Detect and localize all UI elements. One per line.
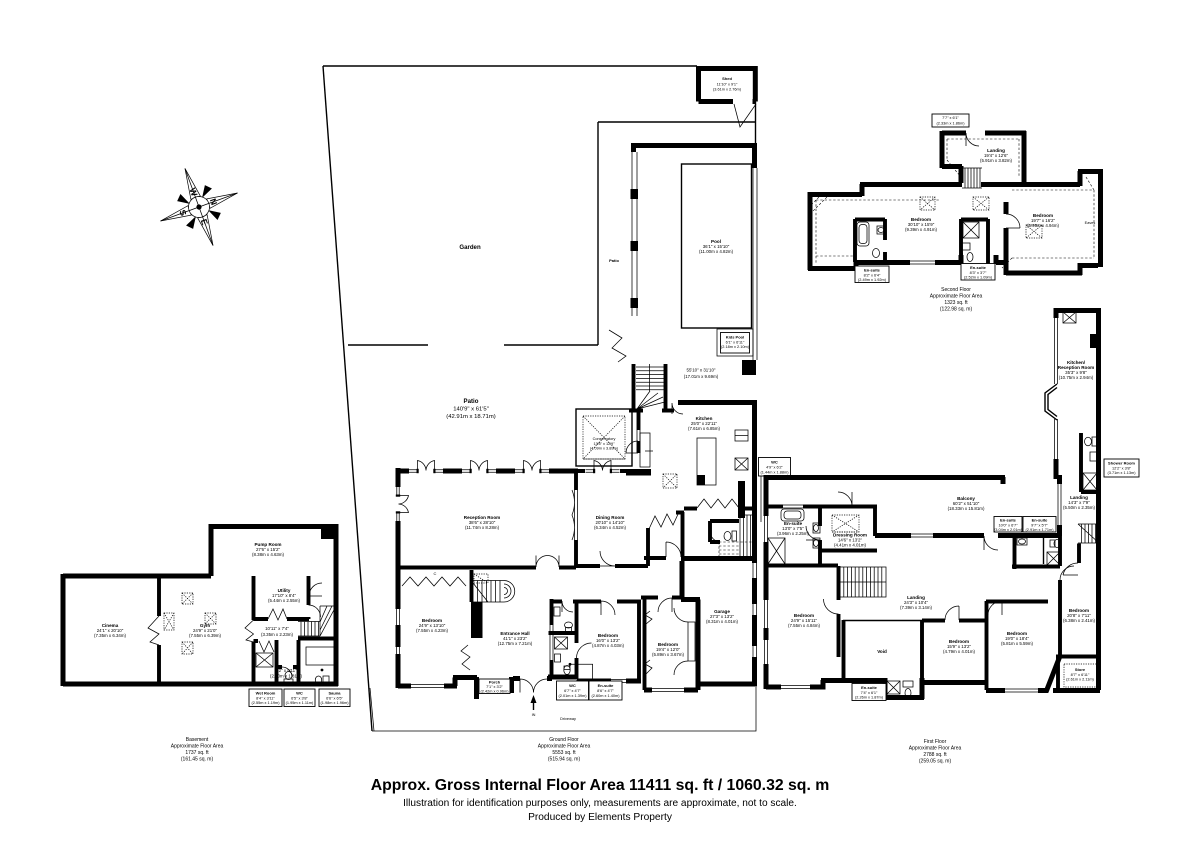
svg-text:(11.00m x 4.82m): (11.00m x 4.82m) — [699, 249, 734, 254]
svg-text:WC: WC — [296, 691, 303, 696]
svg-text:(5.81m x 5.59m): (5.81m x 5.59m) — [1001, 641, 1034, 646]
svg-text:(17.01m x 9.69m): (17.01m x 9.69m) — [684, 374, 719, 379]
svg-text:(2.60m x 1.40m): (2.60m x 1.40m) — [592, 694, 621, 698]
svg-text:En-suite: En-suite — [1000, 518, 1017, 523]
svg-text:(5.91m x 3.82m): (5.91m x 3.82m) — [980, 158, 1013, 163]
svg-text:En-suite: En-suite — [970, 265, 987, 270]
svg-text:(8.31m x 4.01m): (8.31m x 4.01m) — [706, 619, 739, 624]
svg-text:(3.35m x 2.23m): (3.35m x 2.23m) — [261, 632, 294, 637]
svg-text:Illustration for identificatio: Illustration for identification purposes… — [403, 798, 797, 809]
svg-text:En-suite: En-suite — [598, 683, 615, 688]
svg-text:10'0" x 6'7": 10'0" x 6'7" — [999, 523, 1019, 527]
svg-text:7'7" x 6'1": 7'7" x 6'1" — [942, 116, 959, 120]
svg-text:(1.95m x 1.11m): (1.95m x 1.11m) — [286, 701, 314, 705]
svg-text:(10.75m x 2.94m): (10.75m x 2.94m) — [1059, 375, 1094, 380]
svg-text:Eaves: Eaves — [826, 268, 837, 272]
svg-text:(7.39m x 3.14m): (7.39m x 3.14m) — [900, 605, 933, 610]
svg-text:(4.79m x 4.01m): (4.79m x 4.01m) — [943, 649, 976, 654]
svg-text:Garden: Garden — [459, 244, 481, 251]
svg-text:6'1" x 6'11": 6'1" x 6'11" — [726, 340, 745, 344]
svg-text:(7.35m x 6.34m): (7.35m x 6.34m) — [94, 633, 127, 638]
svg-text:(3.61m x 2.76m): (3.61m x 2.76m) — [713, 88, 742, 92]
svg-text:(2.01m x 1.39m): (2.01m x 1.39m) — [559, 694, 588, 698]
svg-text:Produced by Elements Property: Produced by Elements Property — [528, 812, 673, 823]
svg-text:Approximate Floor Area: Approximate Floor Area — [909, 746, 962, 752]
svg-text:(7.55m x 4.23m): (7.55m x 4.23m) — [416, 628, 449, 633]
svg-text:(1.44m x 1.88m): (1.44m x 1.88m) — [761, 471, 790, 475]
svg-text:(2.91m x 1.71m): (2.91m x 1.71m) — [1026, 528, 1055, 532]
svg-text:(7.61m x 6.85m): (7.61m x 6.85m) — [688, 426, 721, 431]
svg-text:(2.33m x 1.86m): (2.33m x 1.86m) — [937, 121, 966, 125]
svg-text:(12.75m x 7.21m): (12.75m x 7.21m) — [498, 641, 533, 646]
svg-text:6'7" x 4'7": 6'7" x 4'7" — [564, 689, 581, 693]
svg-text:(2.42m x 0.96m): (2.42m x 0.96m) — [481, 689, 510, 693]
svg-text:(9.39m x 4.91m): (9.39m x 4.91m) — [905, 227, 938, 232]
svg-text:(2.61m x 2.11m): (2.61m x 2.11m) — [1066, 678, 1094, 682]
svg-text:(2.26m x 1.87m): (2.26m x 1.87m) — [855, 696, 884, 700]
svg-text:6'6" x 6'5": 6'6" x 6'5" — [326, 696, 343, 700]
svg-text:En-suite: En-suite — [1032, 518, 1049, 523]
svg-text:7'4" x 6'1": 7'4" x 6'1" — [861, 691, 878, 695]
svg-text:55'10" x 31'10": 55'10" x 31'10" — [687, 368, 716, 373]
svg-text:8'6" x 4'7": 8'6" x 4'7" — [597, 689, 614, 693]
svg-text:(122.98 sq. m): (122.98 sq. m) — [940, 307, 973, 313]
svg-text:6'5" x 3'8": 6'5" x 3'8" — [291, 696, 308, 700]
svg-text:(5.50m x 2.35m): (5.50m x 2.35m) — [1063, 505, 1096, 510]
svg-text:7'1" x 3'2": 7'1" x 3'2" — [486, 685, 503, 689]
svg-text:Void: Void — [877, 649, 887, 654]
svg-text:Sauna: Sauna — [328, 691, 341, 696]
svg-text:Porch: Porch — [489, 680, 501, 685]
svg-text:(18.33m x 15.81m): (18.33m x 15.81m) — [948, 506, 985, 511]
svg-text:(3.04m x 2.01m): (3.04m x 2.01m) — [994, 528, 1023, 532]
svg-text:(7.55m x 6.39m): (7.55m x 6.39m) — [189, 633, 222, 638]
svg-text:8'2" x 6'4": 8'2" x 6'4" — [864, 273, 881, 277]
svg-text:1737 sq. ft: 1737 sq. ft — [185, 750, 209, 756]
svg-text:Conservatory: Conservatory — [593, 437, 616, 441]
svg-text:11'10" x 9'1": 11'10" x 9'1" — [717, 82, 738, 86]
svg-text:Approx. Gross Internal Floor A: Approx. Gross Internal Floor Area 11411 … — [371, 777, 830, 794]
svg-text:(2.49m x 1.92m): (2.49m x 1.92m) — [858, 278, 887, 282]
svg-text:Driveway: Driveway — [560, 717, 576, 721]
svg-text:(11.74m x 8.28m): (11.74m x 8.28m) — [465, 525, 500, 530]
svg-text:Eaves: Eaves — [1085, 221, 1096, 225]
svg-text:Wet Room: Wet Room — [256, 691, 276, 696]
svg-text:(2.52m x 1.09m): (2.52m x 1.09m) — [964, 276, 993, 280]
svg-text:(515.94 sq. m): (515.94 sq. m) — [548, 757, 581, 763]
svg-text:IN: IN — [532, 713, 536, 717]
svg-text:(2.18m x 2.10m): (2.18m x 2.10m) — [721, 345, 750, 349]
svg-text:Approximate Floor Area: Approximate Floor Area — [171, 744, 224, 750]
svg-text:(3.96m x 2.25m): (3.96m x 2.25m) — [777, 531, 810, 536]
svg-text:(3.71m x 1.13m): (3.71m x 1.13m) — [1108, 471, 1137, 475]
svg-text:2788 sq. ft: 2788 sq. ft — [923, 752, 947, 758]
svg-text:Approximate Floor Area: Approximate Floor Area — [930, 294, 983, 300]
svg-text:(6.38m x 2.41m): (6.38m x 2.41m) — [1063, 618, 1096, 623]
svg-text:13'5" x 12'9": 13'5" x 12'9" — [593, 442, 615, 446]
svg-text:8'7" x 6'11": 8'7" x 6'11" — [1071, 673, 1090, 677]
svg-text:C: C — [434, 571, 437, 576]
svg-text:Patio: Patio — [609, 258, 619, 263]
svg-text:(4.87m x 4.03m): (4.87m x 4.03m) — [592, 643, 625, 648]
svg-text:8'3" x 3'7": 8'3" x 3'7" — [970, 271, 987, 275]
svg-text:(5.95m x 4.94m): (5.95m x 4.94m) — [1027, 223, 1060, 228]
svg-text:140'9" x 61'5": 140'9" x 61'5" — [453, 407, 489, 413]
svg-text:WC: WC — [771, 460, 778, 465]
svg-text:(5.44m x 2.55m): (5.44m x 2.55m) — [268, 598, 301, 603]
svg-text:5553 sq. ft: 5553 sq. ft — [552, 750, 576, 756]
svg-text:Shower Room: Shower Room — [1108, 461, 1135, 466]
svg-text:Kids Pool: Kids Pool — [726, 335, 744, 340]
svg-text:(7.55m x 4.84m): (7.55m x 4.84m) — [788, 623, 821, 628]
svg-text:Ground Floor: Ground Floor — [549, 737, 579, 743]
svg-text:1323 sq. ft: 1323 sq. ft — [944, 300, 968, 306]
svg-text:(259.05 sq. m): (259.05 sq. m) — [919, 759, 952, 765]
svg-text:Approximate Floor Area: Approximate Floor Area — [538, 744, 591, 750]
svg-text:(2.50m x 1.81m): (2.50m x 1.81m) — [270, 674, 303, 679]
svg-text:10'11" x 7'4": 10'11" x 7'4" — [265, 626, 289, 631]
svg-text:(6.34m x 4.52m): (6.34m x 4.52m) — [594, 525, 627, 530]
svg-text:Shed: Shed — [722, 76, 732, 81]
svg-text:(5.89m x 3.67m): (5.89m x 3.67m) — [652, 652, 685, 657]
svg-text:4'9" x 6'2": 4'9" x 6'2" — [766, 466, 783, 470]
svg-text:(4.41m x 4.01m): (4.41m x 4.01m) — [834, 543, 867, 548]
svg-text:En-suite: En-suite — [861, 685, 878, 690]
svg-text:WC: WC — [569, 683, 576, 688]
svg-text:First Floor: First Floor — [924, 739, 947, 745]
svg-text:8'4" x 3'11": 8'4" x 3'11" — [256, 696, 275, 700]
svg-text:Second Floor: Second Floor — [941, 287, 971, 293]
svg-text:Basement: Basement — [186, 737, 209, 743]
svg-text:6'2" x 5'11": 6'2" x 5'11" — [275, 668, 297, 673]
svg-text:En-suite: En-suite — [864, 268, 881, 273]
svg-text:(2.55m x 1.19m): (2.55m x 1.19m) — [252, 701, 281, 705]
svg-text:12'2" x 3'8": 12'2" x 3'8" — [1112, 466, 1132, 470]
svg-text:(8.38m x 4.63m): (8.38m x 4.63m) — [252, 552, 285, 557]
svg-text:(1.98m x 1.96m): (1.98m x 1.96m) — [321, 701, 350, 705]
svg-text:9'7" x 5'7": 9'7" x 5'7" — [1031, 523, 1048, 527]
svg-text:(4.09m x 3.89m): (4.09m x 3.89m) — [590, 447, 619, 451]
svg-text:Patio: Patio — [464, 398, 479, 405]
svg-text:Store: Store — [1075, 667, 1086, 672]
svg-text:(161.45 sq. m): (161.45 sq. m) — [181, 757, 214, 763]
svg-text:(42.91m x 18.71m): (42.91m x 18.71m) — [446, 414, 495, 420]
